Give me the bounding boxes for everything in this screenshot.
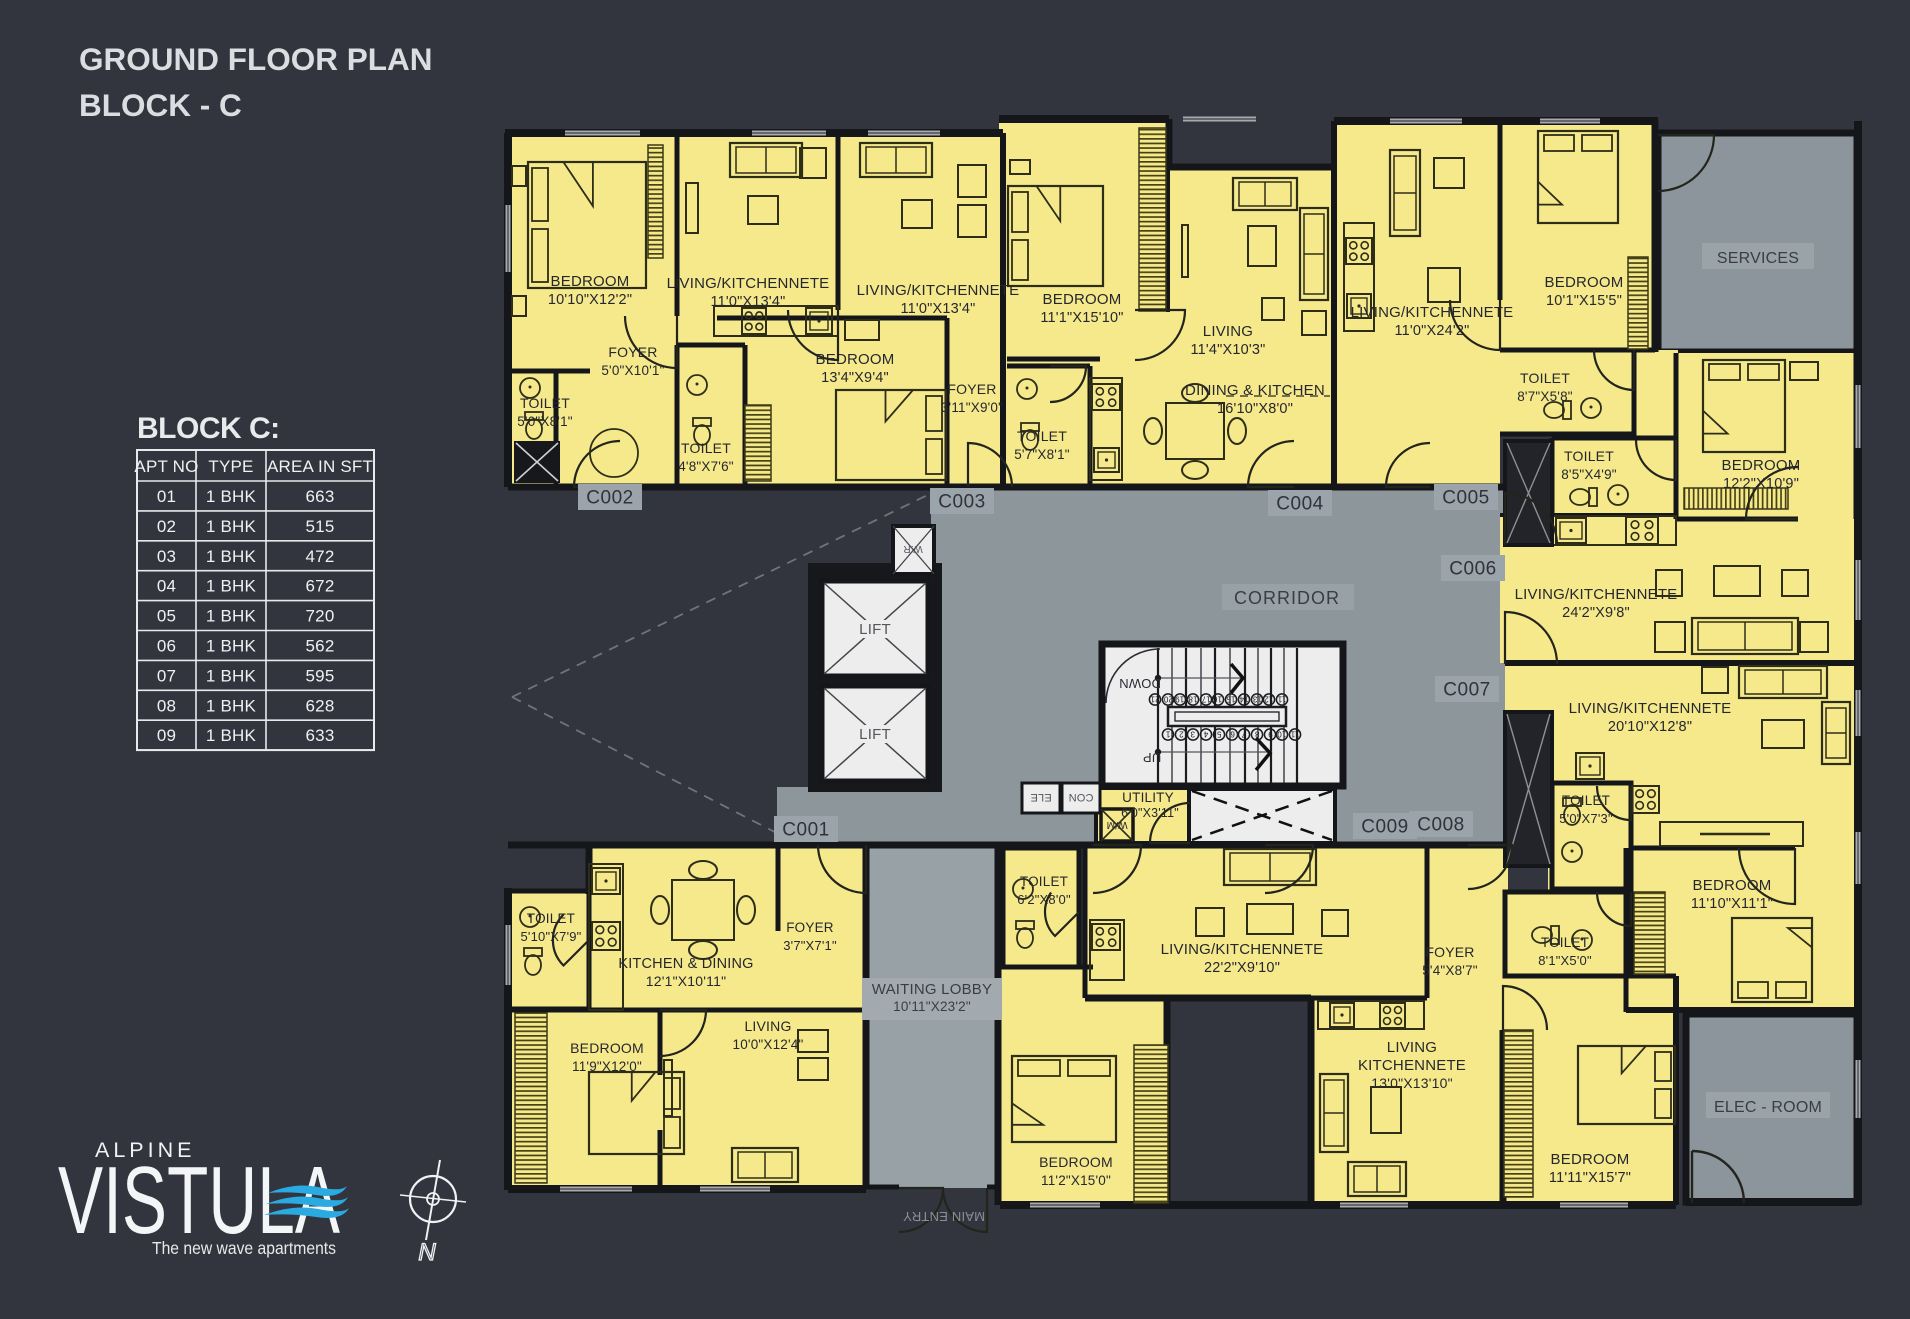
svg-text:8'1"X5'0": 8'1"X5'0" (1538, 953, 1592, 968)
svg-text:C001: C001 (782, 820, 829, 841)
svg-text:5'4"X8'7": 5'4"X8'7" (1422, 963, 1478, 978)
svg-text:N: N (418, 1239, 436, 1266)
svg-text:BEDROOM: BEDROOM (1039, 1154, 1113, 1170)
svg-text:16: 16 (1213, 695, 1223, 704)
svg-text:BLOCK C:: BLOCK C: (137, 412, 280, 445)
svg-text:APT NO: APT NO (134, 457, 198, 476)
svg-text:TOILET: TOILET (681, 440, 731, 456)
svg-text:LIVING/KITCHENNETE: LIVING/KITCHENNETE (1351, 304, 1514, 321)
svg-text:11'0"X13'4": 11'0"X13'4" (900, 301, 975, 317)
svg-text:1 BHK: 1 BHK (206, 666, 257, 685)
svg-text:TOILET: TOILET (1020, 874, 1068, 889)
svg-text:TYPE: TYPE (208, 457, 253, 476)
svg-text:C002: C002 (586, 488, 633, 509)
svg-text:1 BHK: 1 BHK (206, 607, 257, 626)
svg-text:GROUND FLOOR PLAN: GROUND FLOOR PLAN (79, 41, 432, 77)
svg-text:TOILET: TOILET (1520, 370, 1570, 386)
svg-text:15: 15 (1226, 695, 1236, 704)
svg-text:5'7"X8'1": 5'7"X8'1" (1014, 447, 1070, 462)
svg-text:12'2"X10'9": 12'2"X10'9" (1723, 476, 1799, 492)
svg-text:AREA IN SFT: AREA IN SFT (267, 457, 373, 476)
svg-text:MAIN ENTRY: MAIN ENTRY (903, 1209, 985, 1224)
svg-text:LIVING/KITCHENNETE: LIVING/KITCHENNETE (667, 275, 830, 292)
svg-text:6'2"X8'0": 6'2"X8'0" (1017, 892, 1071, 907)
svg-text:BEDROOM: BEDROOM (1722, 457, 1801, 474)
svg-text:ELE: ELE (1030, 791, 1051, 803)
svg-text:1 BHK: 1 BHK (206, 696, 257, 715)
svg-text:LIVING: LIVING (1203, 323, 1253, 340)
svg-text:1 BHK: 1 BHK (206, 637, 257, 656)
svg-text:11: 11 (1277, 695, 1286, 704)
svg-text:UTILITY: UTILITY (1122, 790, 1174, 805)
svg-text:TOILET: TOILET (1562, 793, 1610, 808)
svg-text:10'1"X15'5": 10'1"X15'5" (1546, 293, 1622, 309)
svg-text:7: 7 (1241, 730, 1246, 739)
svg-text:6'0"X3'11": 6'0"X3'11" (1121, 806, 1179, 820)
svg-text:CON: CON (1068, 791, 1093, 803)
svg-text:C005: C005 (1442, 488, 1489, 509)
svg-text:C008: C008 (1417, 815, 1464, 836)
svg-text:20: 20 (1163, 695, 1173, 704)
svg-text:LIVING/KITCHENNETE: LIVING/KITCHENNETE (1515, 586, 1678, 603)
svg-text:9: 9 (1268, 730, 1273, 739)
svg-text:5'10"X7'9": 5'10"X7'9" (520, 929, 581, 944)
svg-text:18: 18 (1188, 695, 1198, 704)
svg-text:TOILET: TOILET (1564, 448, 1614, 464)
svg-text:TOILET: TOILET (1017, 428, 1067, 444)
svg-text:BEDROOM: BEDROOM (1693, 877, 1772, 894)
svg-text:13: 13 (1252, 695, 1262, 704)
svg-text:SERVICES: SERVICES (1717, 250, 1799, 267)
svg-text:2: 2 (1179, 730, 1184, 739)
svg-text:TOILET: TOILET (520, 395, 570, 411)
svg-text:11'0"X13'4": 11'0"X13'4" (710, 294, 785, 310)
svg-text:WAITING LOBBY: WAITING LOBBY (872, 981, 992, 998)
svg-text:The new wave apartments: The new wave apartments (152, 1238, 336, 1258)
svg-text:633: 633 (306, 726, 335, 745)
svg-text:672: 672 (306, 577, 335, 596)
svg-text:720: 720 (306, 607, 335, 626)
svg-text:3'7"X7'1": 3'7"X7'1" (783, 938, 837, 953)
svg-text:BEDROOM: BEDROOM (816, 351, 895, 368)
svg-text:09: 09 (157, 726, 176, 745)
svg-text:3'11"X9'0": 3'11"X9'0" (941, 400, 1003, 415)
svg-text:11'2"X15'0": 11'2"X15'0" (1041, 1173, 1111, 1188)
svg-text:UP: UP (1143, 750, 1161, 765)
svg-text:4'8"X7'6": 4'8"X7'6" (678, 459, 734, 474)
svg-text:21: 21 (1150, 695, 1160, 704)
svg-text:C006: C006 (1449, 559, 1496, 580)
svg-text:20'10"X12'8": 20'10"X12'8" (1608, 719, 1692, 735)
svg-text:BLOCK - C: BLOCK - C (79, 87, 242, 123)
svg-text:06: 06 (157, 637, 176, 656)
svg-text:12'1"X10'11": 12'1"X10'11" (646, 973, 727, 989)
svg-text:LIVING/KITCHENNETE: LIVING/KITCHENNETE (1161, 941, 1324, 958)
svg-text:13'0"X13'10": 13'0"X13'10" (1371, 1075, 1453, 1091)
svg-text:FOYER: FOYER (786, 920, 834, 935)
svg-text:03: 03 (157, 547, 176, 566)
svg-text:KITCHEN & DINING: KITCHEN & DINING (618, 956, 753, 972)
svg-text:1: 1 (1165, 730, 1170, 739)
svg-text:FOYER: FOYER (1425, 944, 1474, 960)
svg-text:12: 12 (1264, 695, 1274, 704)
svg-text:5'0"X10'1": 5'0"X10'1" (601, 363, 664, 378)
svg-text:BEDROOM: BEDROOM (570, 1040, 644, 1056)
svg-text:19: 19 (1175, 695, 1185, 704)
svg-text:8'5"X4'9": 8'5"X4'9" (1561, 467, 1617, 482)
svg-text:10'0"X12'4": 10'0"X12'4" (733, 1037, 804, 1052)
svg-text:ELEC - ROOM: ELEC - ROOM (1714, 1099, 1822, 1116)
svg-text:11'1"X15'10": 11'1"X15'10" (1040, 310, 1123, 326)
svg-text:07: 07 (157, 666, 176, 685)
svg-text:KITCHENNETE: KITCHENNETE (1358, 1057, 1466, 1074)
svg-text:14: 14 (1239, 695, 1249, 704)
svg-text:11'11"X15'7": 11'11"X15'7" (1549, 1170, 1631, 1186)
svg-text:5: 5 (1217, 730, 1222, 739)
svg-text:6: 6 (1230, 730, 1235, 739)
svg-text:BEDROOM: BEDROOM (1545, 274, 1624, 291)
svg-text:16'10"X8'0": 16'10"X8'0" (1217, 401, 1293, 417)
svg-text:8'7"X5'8": 8'7"X5'8" (1517, 389, 1573, 404)
svg-text:1 BHK: 1 BHK (206, 487, 257, 506)
svg-text:11: 11 (1290, 730, 1299, 739)
svg-text:C003: C003 (938, 492, 985, 513)
svg-text:BEDROOM: BEDROOM (551, 273, 630, 290)
svg-text:5'0"X8'1": 5'0"X8'1" (517, 414, 573, 429)
svg-text:11'0"X24'2": 11'0"X24'2" (1394, 323, 1469, 339)
svg-text:628: 628 (306, 696, 335, 715)
svg-text:TOILET: TOILET (527, 911, 575, 926)
svg-text:BEDROOM: BEDROOM (1551, 1151, 1630, 1168)
svg-text:11'10"X11'1": 11'10"X11'1" (1691, 896, 1773, 912)
svg-text:22'2"X9'10": 22'2"X9'10" (1204, 960, 1280, 976)
svg-text:BEDROOM: BEDROOM (1043, 291, 1122, 308)
svg-text:FOYER: FOYER (608, 344, 657, 360)
svg-text:5'0"X7'3": 5'0"X7'3" (1559, 811, 1613, 826)
svg-text:3: 3 (1190, 730, 1195, 739)
svg-text:02: 02 (157, 517, 176, 536)
svg-text:24'2"X9'8": 24'2"X9'8" (1562, 605, 1630, 621)
svg-text:1 BHK: 1 BHK (206, 547, 257, 566)
svg-text:17: 17 (1201, 695, 1211, 704)
svg-text:663: 663 (306, 487, 335, 506)
svg-text:DOWN: DOWN (1119, 676, 1161, 691)
svg-text:LIVING: LIVING (744, 1018, 791, 1034)
svg-text:LIFT: LIFT (859, 726, 891, 743)
svg-text:W/M: W/M (1106, 819, 1127, 830)
svg-text:10'10"X12'2": 10'10"X12'2" (548, 292, 632, 308)
svg-text:1 BHK: 1 BHK (206, 726, 257, 745)
svg-text:08: 08 (157, 696, 176, 715)
svg-text:LIFT: LIFT (859, 621, 891, 638)
svg-text:11'4"X10'3": 11'4"X10'3" (1190, 342, 1265, 358)
svg-text:C009: C009 (1361, 817, 1408, 838)
svg-text:05: 05 (157, 607, 176, 626)
svg-text:C007: C007 (1443, 680, 1490, 701)
svg-text:595: 595 (306, 666, 335, 685)
svg-text:10'11"X23'2": 10'11"X23'2" (893, 999, 971, 1014)
svg-text:8: 8 (1254, 730, 1259, 739)
svg-text:515: 515 (306, 517, 335, 536)
svg-text:LIVING/KITCHENNETE: LIVING/KITCHENNETE (857, 282, 1020, 299)
svg-text:LIVING: LIVING (1387, 1039, 1437, 1056)
svg-text:01: 01 (157, 487, 176, 506)
svg-text:13'4"X9'4": 13'4"X9'4" (821, 370, 889, 386)
svg-text:CORRIDOR: CORRIDOR (1234, 588, 1340, 608)
svg-text:10: 10 (1277, 730, 1287, 739)
svg-text:W.R: W.R (903, 543, 923, 554)
svg-text:472: 472 (306, 547, 335, 566)
svg-text:FOYER: FOYER (947, 381, 996, 397)
svg-text:1 BHK: 1 BHK (206, 577, 257, 596)
svg-text:562: 562 (306, 637, 335, 656)
svg-text:LIVING/KITCHENNETE: LIVING/KITCHENNETE (1569, 700, 1732, 717)
svg-text:11'9"X12'0": 11'9"X12'0" (572, 1059, 642, 1074)
svg-text:1 BHK: 1 BHK (206, 517, 257, 536)
svg-text:4: 4 (1203, 730, 1208, 739)
svg-text:04: 04 (157, 577, 176, 596)
svg-text:C004: C004 (1276, 494, 1323, 515)
svg-text:TOILET: TOILET (1541, 935, 1589, 950)
svg-text:DINING & KITCHEN: DINING & KITCHEN (1185, 382, 1325, 399)
